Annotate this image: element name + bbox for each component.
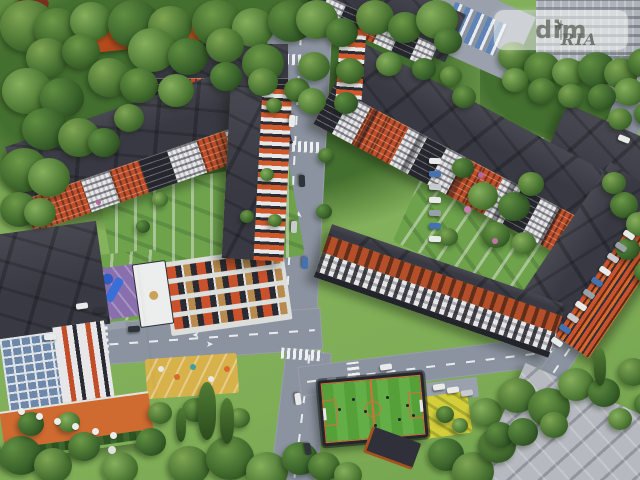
tree	[28, 158, 70, 197]
tree	[268, 214, 282, 227]
tree	[248, 68, 278, 96]
tree	[326, 18, 358, 47]
road-arrow: ➤	[206, 341, 214, 350]
tree	[316, 204, 332, 219]
tree	[452, 158, 474, 178]
tree	[508, 418, 538, 446]
soccer-player	[386, 396, 389, 399]
landscape-accent	[108, 446, 116, 454]
watermark-brand-text: RIA	[561, 30, 597, 49]
tree	[114, 104, 144, 132]
tree	[614, 78, 640, 106]
soccer-player	[398, 418, 401, 421]
tree	[608, 408, 632, 430]
car	[128, 326, 140, 333]
car	[44, 334, 56, 341]
roof-logo-mark	[149, 290, 159, 300]
car	[291, 221, 297, 233]
tree	[158, 74, 194, 107]
tree	[412, 58, 436, 80]
tree	[452, 418, 468, 433]
patio-umbrella	[92, 428, 99, 435]
tree	[334, 92, 358, 114]
tree	[440, 66, 462, 86]
tree	[468, 182, 498, 210]
tree	[518, 172, 544, 196]
car	[429, 171, 441, 177]
tree	[34, 448, 72, 480]
tree	[260, 168, 274, 181]
landscape-accent	[174, 374, 180, 380]
tree	[102, 452, 138, 480]
car	[429, 158, 441, 164]
tree	[528, 78, 556, 104]
car	[429, 210, 441, 216]
soccer-player	[374, 424, 377, 427]
tree	[24, 198, 56, 227]
goal-right	[419, 400, 423, 412]
tree	[136, 428, 166, 456]
tree	[266, 98, 282, 113]
landscape-accent	[224, 366, 230, 372]
tree	[68, 432, 100, 461]
tree	[210, 62, 242, 91]
center-circle	[364, 400, 381, 417]
conifer-tree	[220, 398, 234, 444]
patio-umbrella	[18, 408, 25, 415]
car	[299, 175, 305, 187]
car	[302, 257, 308, 269]
landscape-accent	[190, 364, 196, 370]
soccer-player	[412, 414, 415, 417]
tree	[502, 68, 528, 92]
tree	[434, 28, 462, 54]
tree	[608, 108, 632, 130]
landscape-accent	[464, 206, 471, 213]
landscape-accent	[208, 376, 214, 382]
tree	[618, 358, 640, 386]
tree	[152, 192, 168, 207]
tree	[136, 220, 150, 233]
car	[429, 197, 441, 203]
tree	[206, 28, 244, 63]
soccer-player	[364, 410, 367, 413]
soccer-player	[406, 404, 409, 407]
building-inner-wing-roadside	[222, 86, 293, 261]
landscape-accent	[478, 172, 484, 178]
tree	[168, 38, 208, 75]
tree	[168, 446, 210, 480]
patio-umbrella	[110, 432, 117, 439]
tree	[452, 86, 476, 108]
conifer-tree	[594, 348, 606, 386]
tree	[298, 52, 330, 81]
tree	[602, 172, 626, 194]
patio-umbrella	[54, 418, 61, 425]
tree	[120, 68, 158, 103]
striped-facade	[52, 321, 114, 403]
tree	[498, 192, 530, 221]
tree	[512, 232, 536, 254]
conifer-tree	[176, 408, 186, 442]
tree	[336, 58, 364, 84]
landscape-accent	[492, 238, 498, 244]
tree	[298, 88, 326, 114]
tree	[436, 406, 454, 423]
patio-umbrella	[72, 423, 79, 430]
patio-umbrella	[36, 413, 43, 420]
soccer-player	[352, 398, 355, 401]
car	[429, 184, 441, 190]
conifer-tree	[198, 382, 216, 440]
tree	[540, 412, 568, 438]
tree	[588, 84, 616, 110]
tree	[88, 128, 120, 157]
playground-yellow-pad	[145, 353, 240, 399]
car	[429, 223, 441, 229]
tree	[376, 52, 402, 76]
car	[289, 115, 296, 127]
landscape-accent	[96, 200, 101, 205]
landscape-accent	[158, 366, 164, 372]
car	[429, 236, 441, 242]
tree	[318, 148, 334, 163]
aerial-render-residential-complex: ➤ ➤ ➤	[0, 0, 640, 480]
watermark-dim-ria: dim ✈ RIA	[494, 10, 628, 50]
tree	[148, 402, 172, 424]
tree	[588, 378, 620, 407]
tree	[334, 462, 362, 480]
tree	[558, 84, 584, 108]
soccer-player	[338, 408, 341, 411]
tree	[240, 210, 254, 223]
tree	[482, 222, 510, 248]
